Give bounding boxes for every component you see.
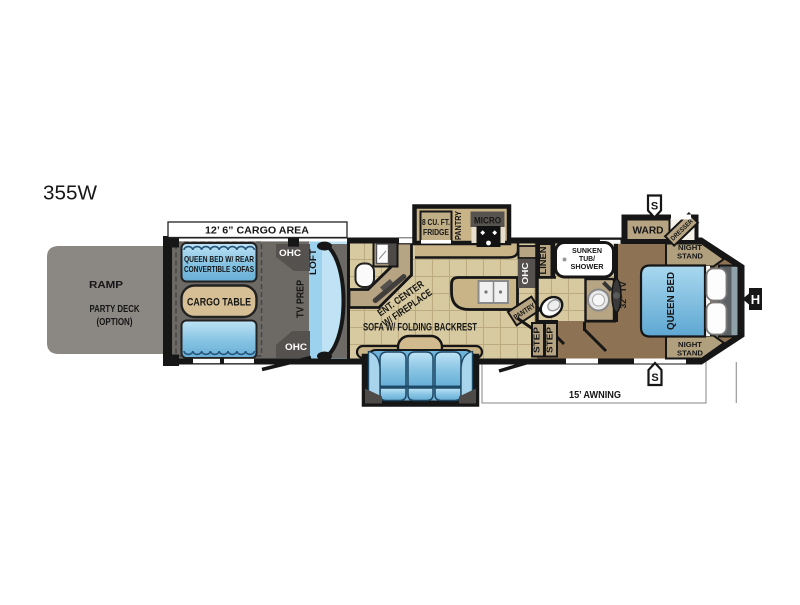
- svg-text:QUEEN BED: QUEEN BED: [665, 272, 677, 330]
- svg-text:MICRO: MICRO: [474, 216, 501, 227]
- svg-text:QUEEN BED W/ REAR: QUEEN BED W/ REAR: [184, 254, 254, 264]
- svg-text:STAND: STAND: [677, 349, 704, 358]
- svg-text:OHC: OHC: [279, 248, 301, 259]
- svg-text:TV PREP: TV PREP: [296, 280, 307, 318]
- svg-text:OHC: OHC: [285, 342, 307, 353]
- svg-text:LOFT: LOFT: [308, 249, 319, 275]
- svg-text:SOFA W/ FOLDING BACKREST: SOFA W/ FOLDING BACKREST: [363, 322, 477, 334]
- svg-text:WARD: WARD: [633, 225, 664, 237]
- svg-text:355W: 355W: [43, 182, 98, 205]
- svg-text:(OPTION): (OPTION): [97, 316, 133, 328]
- svg-text:32” TV: 32” TV: [618, 281, 628, 308]
- svg-text:CARGO TABLE: CARGO TABLE: [187, 297, 251, 309]
- svg-text:PANTRY: PANTRY: [453, 211, 463, 240]
- svg-text:STEP: STEP: [546, 326, 555, 353]
- svg-text:STAND: STAND: [677, 252, 704, 261]
- svg-text:SHOWER: SHOWER: [571, 262, 605, 271]
- svg-text:8 CU. FT.: 8 CU. FT.: [422, 218, 450, 227]
- svg-text:15’ AWNING: 15’ AWNING: [569, 390, 621, 401]
- svg-text:12’ 6” CARGO AREA: 12’ 6” CARGO AREA: [205, 225, 309, 237]
- svg-text:S: S: [651, 372, 658, 384]
- svg-text:OHC: OHC: [520, 263, 530, 285]
- svg-text:H: H: [751, 292, 760, 307]
- svg-text:CONVERTIBLE SOFAS: CONVERTIBLE SOFAS: [184, 264, 254, 274]
- svg-text:STEP: STEP: [533, 326, 542, 353]
- svg-text:LINEN: LINEN: [539, 246, 548, 274]
- svg-text:S: S: [651, 201, 658, 213]
- svg-text:RAMP: RAMP: [89, 279, 123, 291]
- svg-text:FRIDGE: FRIDGE: [423, 228, 450, 237]
- svg-text:PARTY DECK: PARTY DECK: [90, 303, 140, 315]
